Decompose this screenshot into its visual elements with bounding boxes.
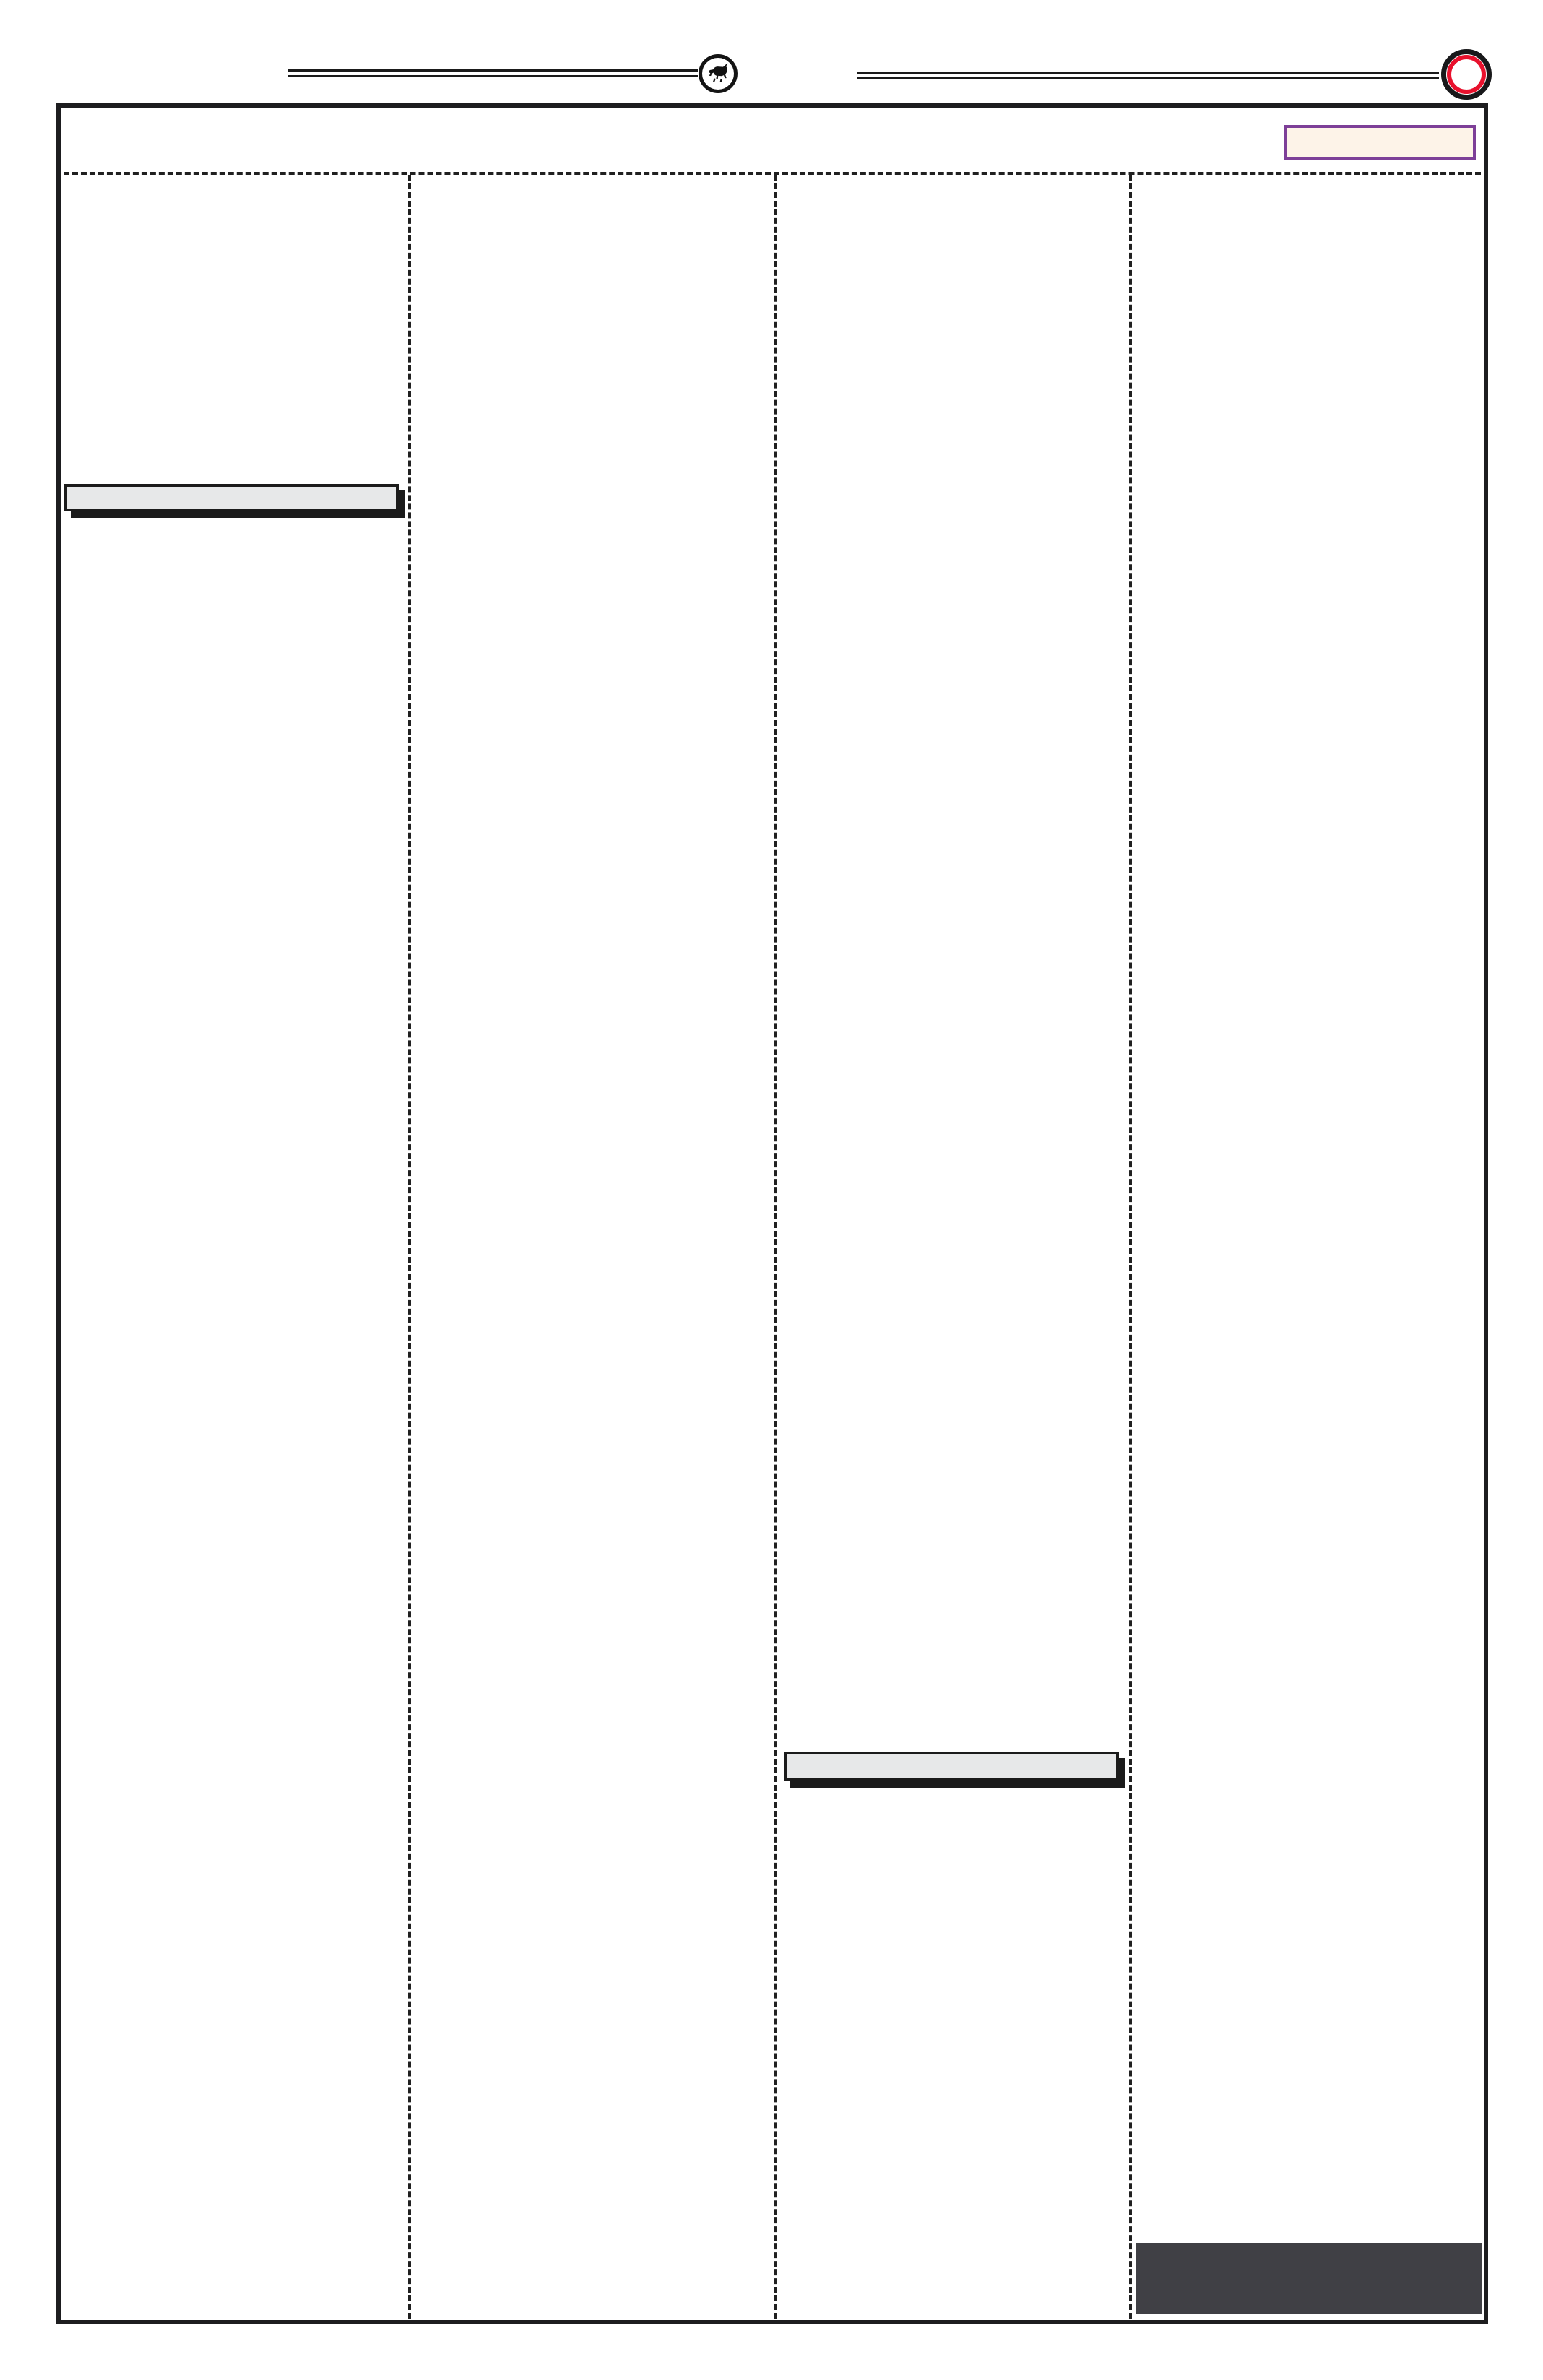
logo-badge [699, 54, 738, 93]
page-frame [56, 103, 1488, 2324]
column-divider-2 [774, 175, 777, 2319]
masthead-right-rule [857, 72, 1439, 79]
headline-placeholder-bar-col1 [64, 484, 399, 511]
masthead-left-rule [288, 69, 698, 77]
newspaper-template-page [0, 0, 1543, 2380]
red-seal-inner-ring [1447, 55, 1486, 94]
header-dashed-rule [64, 172, 1481, 175]
footer-dark-block [1136, 2243, 1482, 2314]
bull-logo-icon [705, 61, 731, 87]
column-divider-3 [1129, 175, 1132, 2319]
headline-placeholder-bar-col3 [784, 1752, 1119, 1781]
red-seal-icon [1441, 49, 1492, 100]
column-divider-1 [408, 175, 411, 2319]
ear-highlight-box [1284, 125, 1476, 160]
